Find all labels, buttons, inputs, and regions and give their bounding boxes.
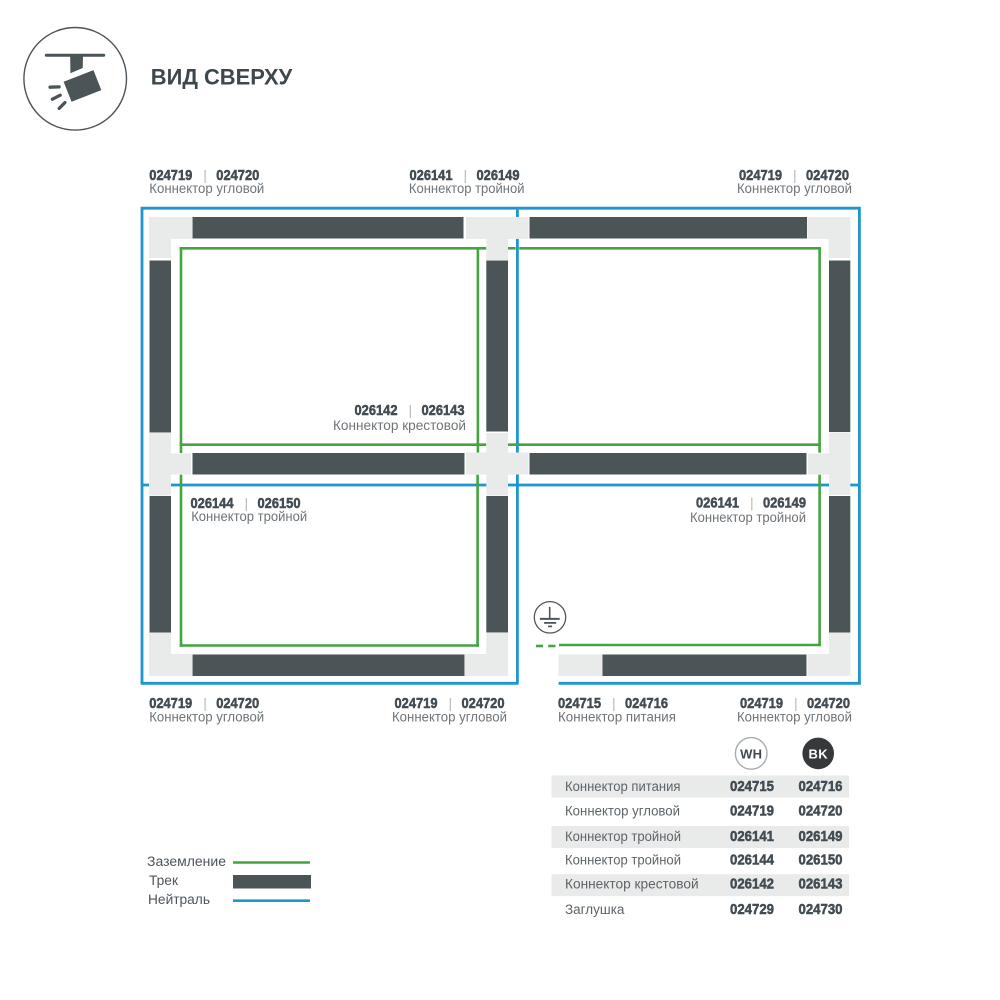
svg-text:Коннектор тройной: Коннектор тройной: [565, 853, 681, 868]
svg-text:024730: 024730: [799, 901, 843, 918]
svg-text:Коннектор угловой: Коннектор угловой: [737, 709, 852, 724]
svg-text:Коннектор угловой: Коннектор угловой: [149, 181, 264, 196]
svg-text:024715: 024715: [730, 778, 774, 795]
svg-text:Заглушка: Заглушка: [565, 902, 625, 917]
svg-text:Заземление: Заземление: [147, 854, 226, 869]
svg-text:026143: 026143: [422, 402, 465, 419]
svg-text:Коннектор питания: Коннектор питания: [558, 709, 676, 724]
svg-text:Коннектор питания: Коннектор питания: [565, 779, 681, 794]
svg-text:024729: 024729: [730, 901, 774, 918]
svg-text:ВИД СВЕРХУ: ВИД СВЕРХУ: [151, 65, 293, 90]
svg-text:Коннектор угловой: Коннектор угловой: [149, 709, 264, 724]
svg-text:026142: 026142: [730, 876, 774, 893]
svg-text:Нейтраль: Нейтраль: [148, 892, 210, 907]
svg-text:Коннектор угловой: Коннектор угловой: [565, 804, 680, 819]
svg-text:Коннектор тройной: Коннектор тройной: [191, 509, 307, 524]
svg-text:026143: 026143: [799, 876, 843, 893]
svg-text:026141: 026141: [730, 828, 774, 845]
svg-text:Коннектор тройной: Коннектор тройной: [409, 181, 525, 196]
svg-text:026142: 026142: [355, 402, 398, 419]
svg-text:024716: 024716: [799, 778, 843, 795]
svg-text:026150: 026150: [799, 852, 843, 869]
svg-text:026144: 026144: [730, 852, 775, 869]
svg-text:Коннектор угловой: Коннектор угловой: [392, 709, 507, 724]
svg-text:Трек: Трек: [149, 873, 178, 888]
svg-text:Коннектор тройной: Коннектор тройной: [565, 829, 681, 844]
svg-text:Коннектор крестовой: Коннектор крестовой: [565, 877, 699, 892]
svg-text:Коннектор угловой: Коннектор угловой: [737, 181, 852, 196]
svg-text:BK: BK: [809, 746, 829, 761]
svg-text:024720: 024720: [799, 803, 843, 820]
svg-text:024719: 024719: [730, 803, 774, 820]
svg-text:Коннектор тройной: Коннектор тройной: [690, 510, 806, 525]
svg-text:026149: 026149: [799, 828, 843, 845]
svg-text:|: |: [750, 495, 754, 511]
svg-text:Коннектор крестовой: Коннектор крестовой: [333, 418, 466, 433]
svg-text:|: |: [409, 402, 413, 418]
svg-text:WH: WH: [740, 746, 762, 761]
